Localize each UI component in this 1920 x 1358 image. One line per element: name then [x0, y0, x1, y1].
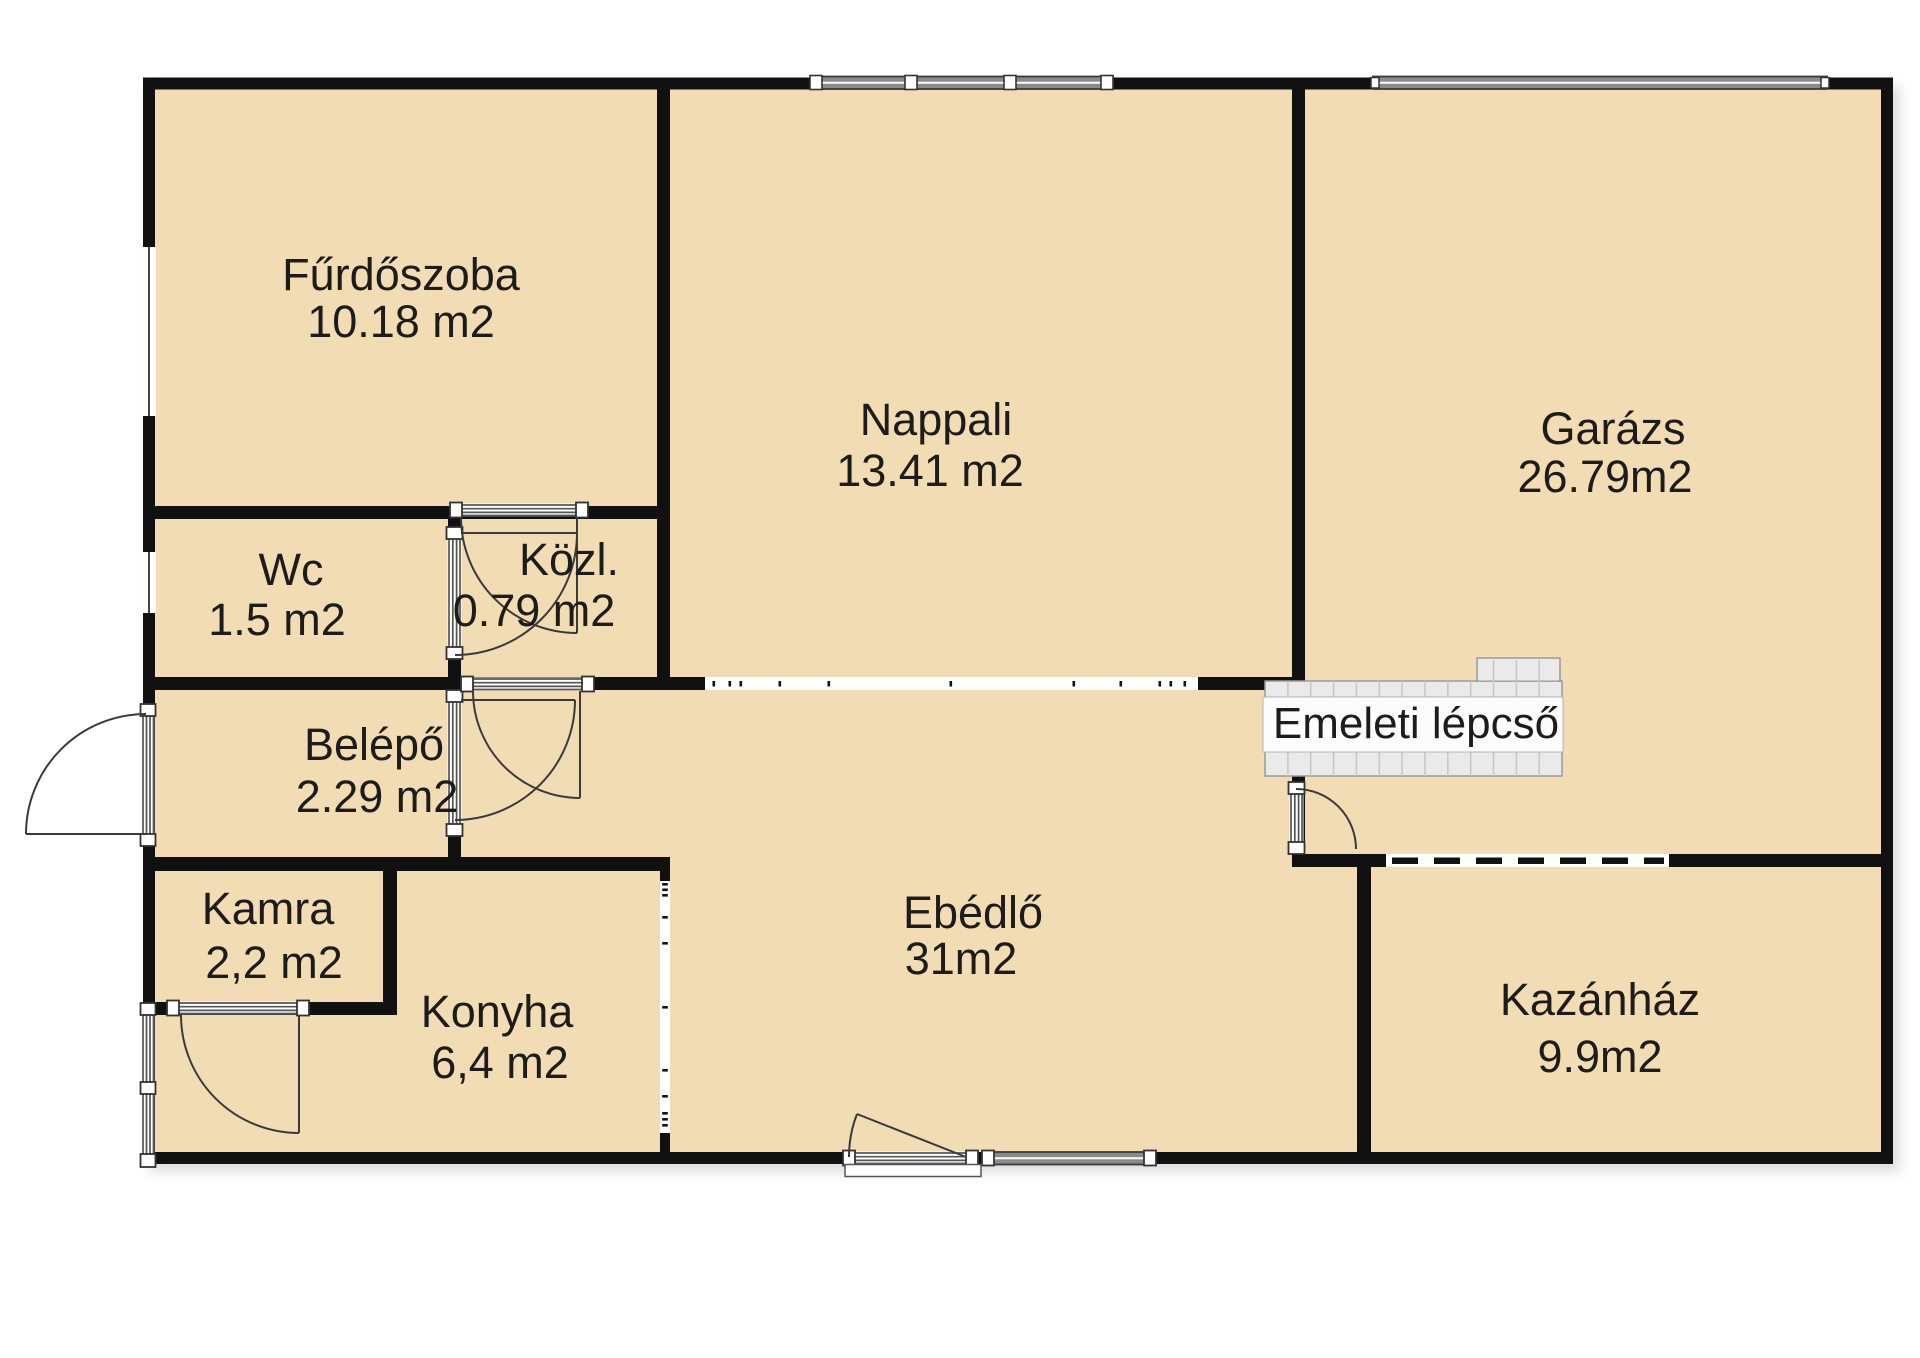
svg-text:Kamra: Kamra [202, 883, 336, 934]
svg-text:2.29 m2: 2.29 m2 [296, 771, 459, 822]
svg-text:Wc: Wc [259, 544, 324, 595]
svg-text:Belépő: Belépő [304, 719, 444, 770]
svg-text:Emeleti lépcső: Emeleti lépcső [1273, 699, 1559, 748]
svg-text:Közl.: Közl. [519, 534, 619, 585]
svg-text:2,2 m2: 2,2 m2 [205, 937, 343, 988]
svg-text:Kazánház: Kazánház [1500, 974, 1700, 1025]
svg-text:Nappali: Nappali [860, 394, 1013, 445]
svg-text:Fűrdőszoba: Fűrdőszoba [282, 249, 521, 300]
svg-text:26.79m2: 26.79m2 [1517, 451, 1692, 502]
svg-text:1.5 m2: 1.5 m2 [208, 594, 346, 645]
svg-text:Ebédlő: Ebédlő [903, 887, 1043, 938]
svg-text:31m2: 31m2 [905, 933, 1018, 984]
svg-text:0.79 m2: 0.79 m2 [453, 585, 616, 636]
svg-text:9.9m2: 9.9m2 [1537, 1031, 1662, 1082]
svg-text:Garázs: Garázs [1540, 403, 1685, 454]
svg-text:10.18 m2: 10.18 m2 [307, 296, 495, 347]
svg-text:6,4 m2: 6,4 m2 [431, 1037, 569, 1088]
svg-text:Konyha: Konyha [421, 986, 575, 1037]
svg-text:13.41 m2: 13.41 m2 [836, 445, 1024, 496]
